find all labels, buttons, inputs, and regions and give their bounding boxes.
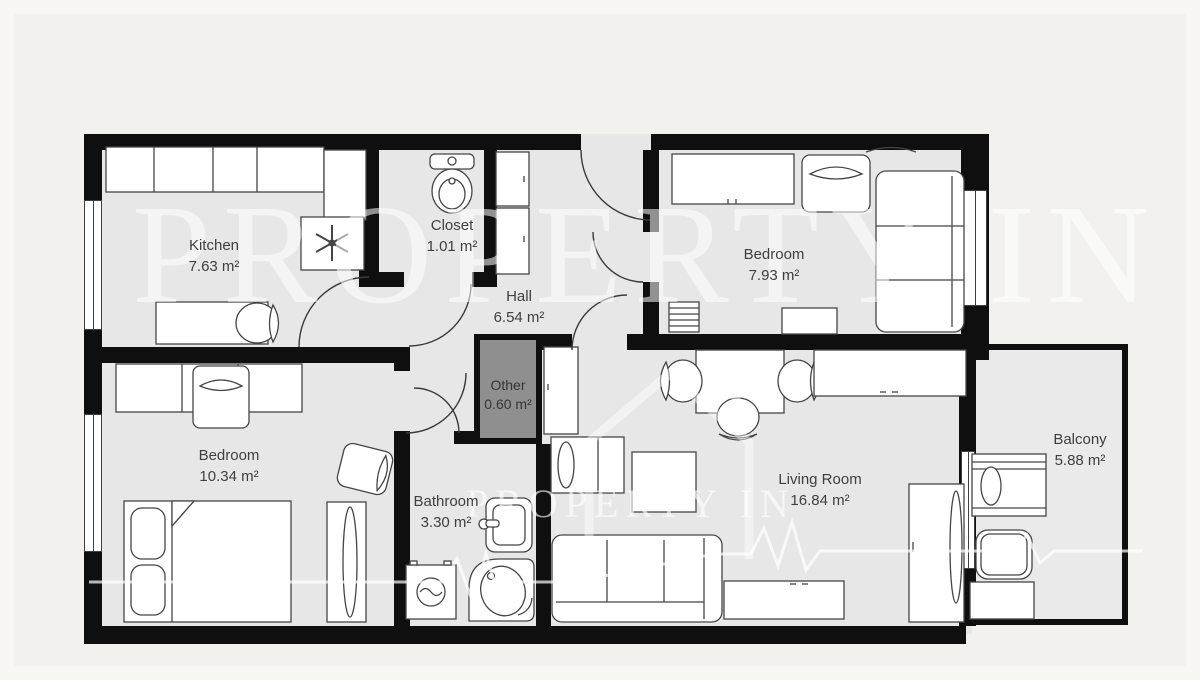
door-arc-bedroom-small — [593, 232, 643, 282]
balcony-bench — [972, 454, 1046, 516]
door-arc-living — [572, 295, 627, 350]
sofa — [552, 535, 722, 622]
balcony-table — [970, 582, 1034, 619]
floorplan-canvas: PROPERTY IN PROPERTY IN Kitchen 7.63 m² … — [0, 0, 1200, 680]
desk-chair — [193, 366, 249, 428]
desk-small — [782, 308, 837, 334]
toilet — [430, 154, 474, 213]
wardrobe — [672, 154, 794, 204]
tv-cabinet — [724, 581, 844, 619]
sideboard — [814, 350, 966, 396]
bed-single — [866, 148, 964, 333]
washing-machine — [406, 561, 456, 619]
dining-chair — [778, 360, 820, 402]
door-arc-bedroom-large — [406, 373, 466, 433]
bed-double — [124, 501, 291, 622]
sink — [479, 498, 532, 552]
cabinet — [544, 347, 578, 434]
bathtub — [469, 559, 534, 622]
side-table — [632, 452, 696, 512]
furniture-layer — [14, 14, 1200, 680]
freezer — [301, 217, 364, 270]
door-arc-entrance — [581, 150, 651, 220]
kitchen-counter — [106, 147, 366, 220]
hall-cabinet — [496, 152, 529, 274]
door-arc-kitchen — [299, 277, 369, 347]
wardrobe-tall — [327, 502, 366, 622]
wardrobe-living — [909, 484, 964, 622]
armchair — [802, 155, 870, 212]
door-arc-closet — [409, 284, 471, 346]
radiator — [669, 302, 699, 332]
kitchen-table — [156, 302, 279, 344]
side-chair — [335, 442, 394, 497]
